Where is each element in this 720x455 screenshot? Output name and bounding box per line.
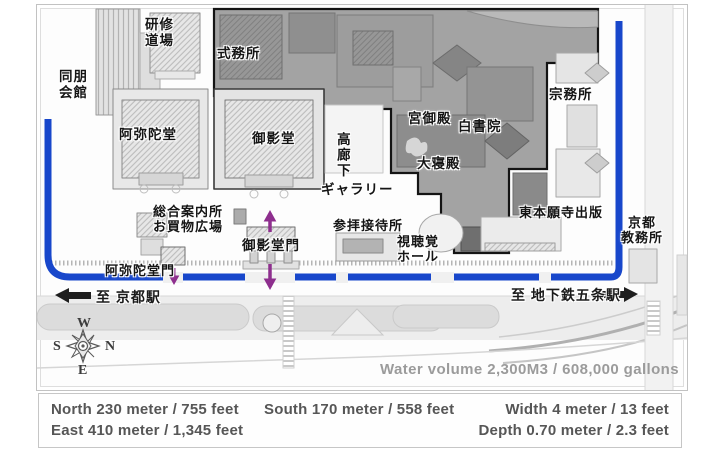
building-sogo-annaisho: [137, 213, 167, 237]
measure-depth: Depth 0.70 meter / 2.3 feet: [479, 420, 669, 442]
water-volume-note: Water volume 2,300M3 / 608,000 gallons: [380, 361, 679, 378]
info-board: [234, 209, 246, 224]
compass-s: S: [53, 339, 61, 355]
to-kyoto-station-label: 至 京都駅: [96, 287, 161, 307]
compass-e: E: [78, 363, 87, 379]
roundabout-circle: [263, 314, 281, 332]
crosswalk-right: [647, 301, 660, 335]
temple-map: 研修 道場同朋 会館式務所阿弥陀堂御影堂高廊下ギャラリー宮御殿白書院大寝殿宗務所…: [36, 4, 688, 391]
measure-south: South 170 meter / 558 feet: [264, 399, 454, 421]
measure-east: East 410 meter / 1,345 feet: [51, 420, 243, 442]
building-shichokaku-hall: [419, 214, 463, 252]
measure-width: Width 4 meter / 13 feet: [505, 399, 669, 421]
measure-north: North 230 meter / 755 feet: [51, 399, 239, 421]
compass-n: N: [105, 339, 115, 355]
compass-w: W: [77, 316, 91, 332]
building-kenshu-dojo: [150, 13, 200, 73]
temple-map-page: 研修 道場同朋 会館式務所阿弥陀堂御影堂高廊下ギャラリー宮御殿白書院大寝殿宗務所…: [0, 0, 720, 455]
building-kyoto-kyomusho: [629, 249, 657, 283]
moat-measurements-panel: North 230 meter / 755 feet East 410 mete…: [38, 393, 682, 448]
to-gojo-station-label: 至 地下鉄五条駅: [511, 285, 621, 305]
building-amidado-mon: [161, 247, 185, 265]
crosswalk: [283, 296, 294, 368]
map-graphics: [37, 5, 687, 390]
